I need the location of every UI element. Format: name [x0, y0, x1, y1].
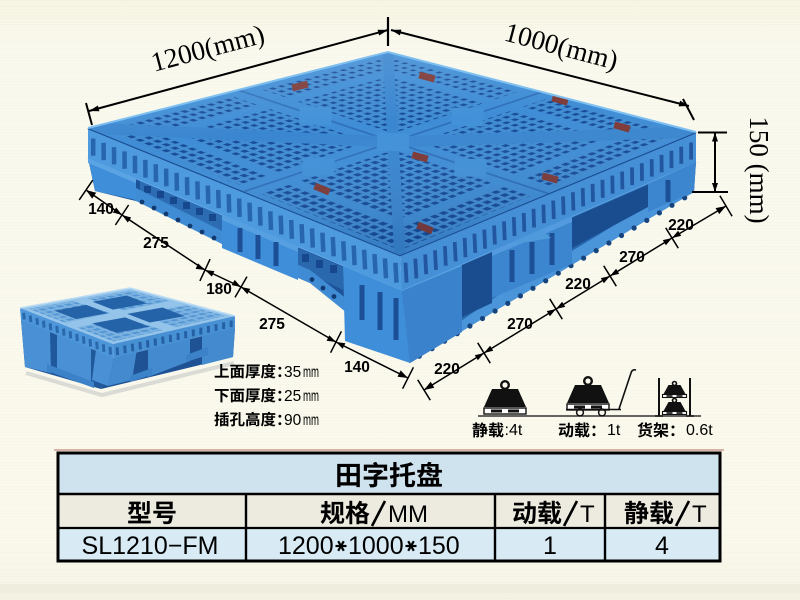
- svg-text:T: T: [580, 501, 595, 528]
- svg-text:mm: mm: [303, 412, 319, 429]
- svg-text:mm: mm: [303, 364, 319, 381]
- svg-text:mm: mm: [303, 388, 319, 405]
- svg-text:0.6t: 0.6t: [686, 422, 713, 439]
- svg-text:220: 220: [565, 276, 591, 293]
- svg-text:1000(mm): 1000(mm): [501, 16, 621, 76]
- svg-text:MM: MM: [388, 501, 428, 528]
- svg-text:270: 270: [507, 316, 533, 333]
- svg-text:1: 1: [543, 532, 557, 560]
- svg-text:275: 275: [143, 235, 169, 252]
- svg-text:1000: 1000: [348, 532, 404, 560]
- svg-text:150 (mm): 150 (mm): [744, 116, 774, 223]
- svg-text:275: 275: [259, 316, 285, 333]
- svg-text:35: 35: [284, 364, 301, 381]
- svg-text::4t: :4t: [505, 422, 523, 439]
- svg-text:220: 220: [668, 217, 694, 234]
- svg-text:180: 180: [206, 281, 232, 298]
- svg-text:4: 4: [655, 532, 669, 560]
- svg-text:220: 220: [434, 361, 460, 378]
- svg-text:1200: 1200: [278, 532, 334, 560]
- svg-text:150: 150: [418, 532, 460, 560]
- svg-text:270: 270: [619, 249, 645, 266]
- svg-text:140: 140: [344, 359, 370, 376]
- svg-text:1200(mm): 1200(mm): [147, 18, 267, 78]
- svg-text:1t: 1t: [607, 422, 621, 439]
- svg-text:90: 90: [284, 412, 302, 429]
- svg-text:T: T: [692, 501, 707, 528]
- svg-text:140: 140: [88, 201, 114, 218]
- svg-text:25: 25: [284, 388, 301, 405]
- svg-text:SL1210−FM: SL1210−FM: [82, 532, 219, 560]
